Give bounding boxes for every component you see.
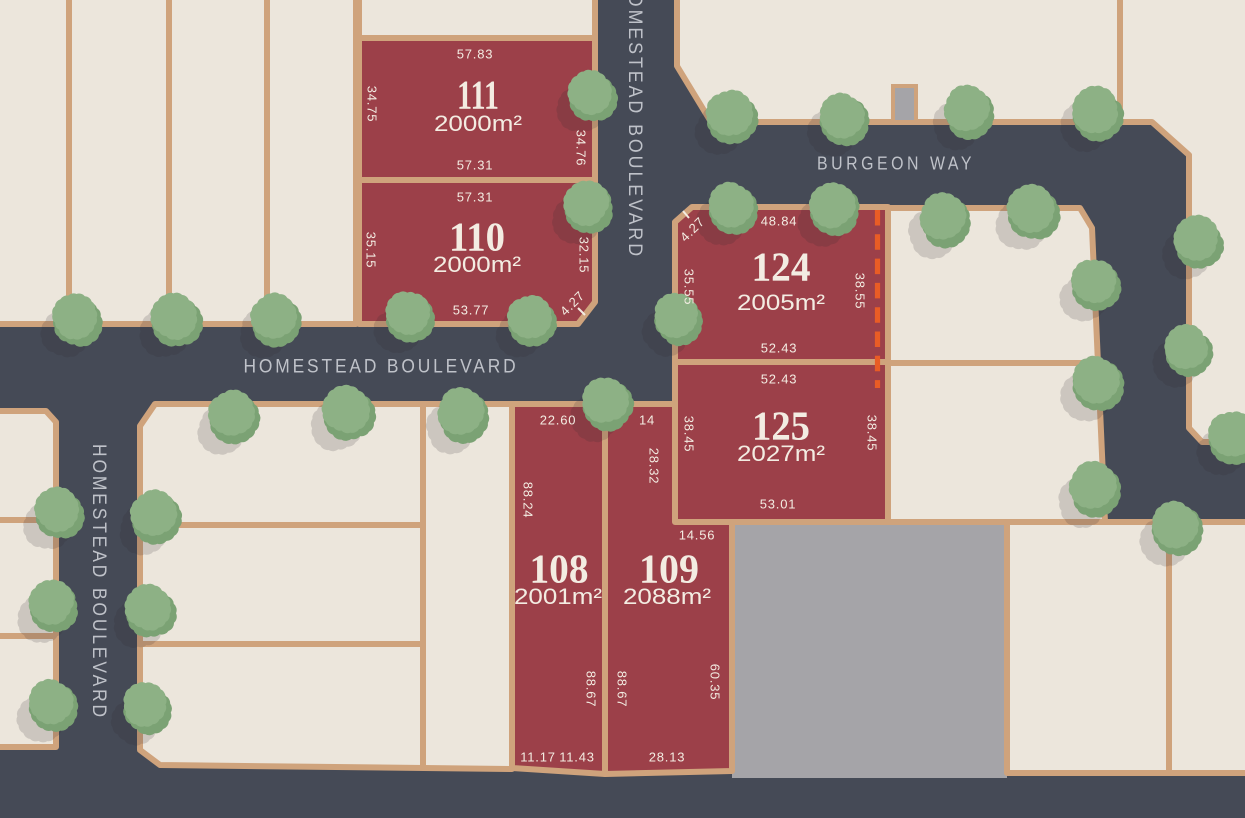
svg-text:2001m²: 2001m² xyxy=(514,584,603,609)
svg-text:52.43: 52.43 xyxy=(761,340,798,355)
svg-text:35.15: 35.15 xyxy=(364,232,379,269)
svg-text:28.13: 28.13 xyxy=(649,749,686,764)
svg-text:88.24: 88.24 xyxy=(521,482,536,519)
svg-text:2088m²: 2088m² xyxy=(623,584,712,609)
svg-text:124: 124 xyxy=(752,243,811,289)
svg-text:57.83: 57.83 xyxy=(457,46,494,61)
svg-text:14.56: 14.56 xyxy=(679,527,716,542)
svg-text:48.84: 48.84 xyxy=(761,213,798,228)
svg-text:11.43: 11.43 xyxy=(559,749,595,764)
svg-text:35.55: 35.55 xyxy=(682,269,697,306)
svg-text:HOMESTEAD BOULEVARD: HOMESTEAD BOULEVARD xyxy=(244,356,519,378)
svg-text:53.01: 53.01 xyxy=(760,496,797,511)
svg-text:2000m²: 2000m² xyxy=(433,252,522,277)
svg-text:88.67: 88.67 xyxy=(615,671,630,708)
svg-text:57.31: 57.31 xyxy=(457,157,494,172)
svg-text:38.45: 38.45 xyxy=(682,416,697,453)
svg-text:32.15: 32.15 xyxy=(577,237,592,274)
svg-text:2027m²: 2027m² xyxy=(737,441,826,466)
svg-text:34.76: 34.76 xyxy=(574,130,589,167)
svg-text:28.32: 28.32 xyxy=(647,448,662,485)
svg-text:11.17: 11.17 xyxy=(520,749,556,764)
svg-text:38.45: 38.45 xyxy=(865,415,880,452)
svg-text:BURGEON WAY: BURGEON WAY xyxy=(817,153,975,173)
svg-text:52.43: 52.43 xyxy=(761,371,798,386)
svg-text:57.31: 57.31 xyxy=(457,189,494,204)
svg-text:22.60: 22.60 xyxy=(540,412,577,427)
svg-text:14: 14 xyxy=(639,412,655,427)
svg-text:HOMESTEAD BOULEVARD: HOMESTEAD BOULEVARD xyxy=(624,0,646,259)
svg-text:60.35: 60.35 xyxy=(708,664,723,701)
svg-text:53.77: 53.77 xyxy=(453,302,490,317)
svg-text:2000m²: 2000m² xyxy=(434,111,523,136)
svg-text:38.55: 38.55 xyxy=(853,273,868,310)
svg-text:88.67: 88.67 xyxy=(584,671,599,708)
svg-text:HOMESTEAD BOULEVARD: HOMESTEAD BOULEVARD xyxy=(88,444,110,720)
svg-text:2005m²: 2005m² xyxy=(737,290,826,315)
svg-text:34.75: 34.75 xyxy=(365,86,380,123)
